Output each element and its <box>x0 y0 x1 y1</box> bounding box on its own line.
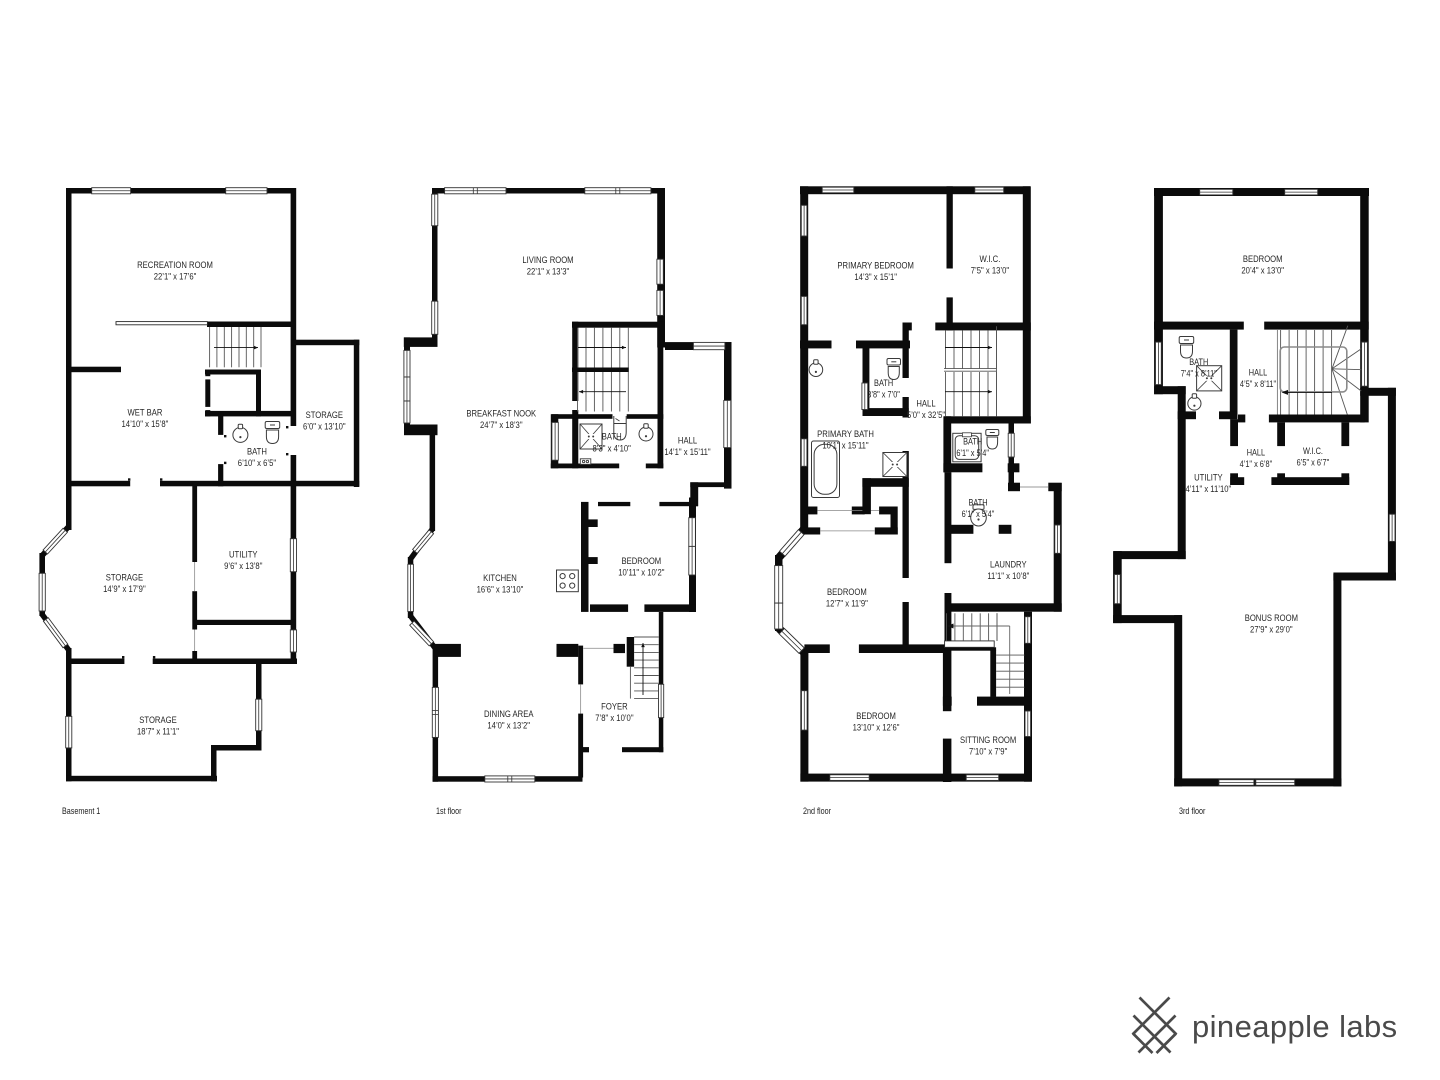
svg-text:4’1" x 6’8": 4’1" x 6’8" <box>1240 458 1273 469</box>
svg-text:STORAGE: STORAGE <box>106 572 144 583</box>
svg-text:14’3" x 15’1": 14’3" x 15’1" <box>854 271 897 282</box>
svg-text:KITCHEN: KITCHEN <box>483 572 517 583</box>
svg-text:14’10" x 15’8": 14’10" x 15’8" <box>122 418 169 429</box>
svg-text:BATH: BATH <box>602 431 622 442</box>
svg-text:4’5" x 8’11": 4’5" x 8’11" <box>1240 378 1276 389</box>
svg-text:2nd floor: 2nd floor <box>803 806 831 816</box>
svg-text:7’10" x 7’9": 7’10" x 7’9" <box>969 745 1007 756</box>
svg-text:LIVING ROOM: LIVING ROOM <box>522 254 573 265</box>
svg-text:7’8" x 10’0": 7’8" x 10’0" <box>595 712 633 723</box>
svg-text:BONUS ROOM: BONUS ROOM <box>1245 612 1298 623</box>
svg-text:BATH: BATH <box>1189 356 1208 367</box>
svg-text:5’0" x 32’5": 5’0" x 32’5" <box>907 409 945 420</box>
svg-text:SITTING ROOM: SITTING ROOM <box>960 734 1016 745</box>
svg-text:BATH: BATH <box>247 446 267 457</box>
svg-text:27’9" x 29’0": 27’9" x 29’0" <box>1250 623 1293 634</box>
svg-text:BATH: BATH <box>968 497 987 508</box>
svg-text:14’9" x 17’9": 14’9" x 17’9" <box>103 583 146 594</box>
svg-text:6’1" x 5’4": 6’1" x 5’4" <box>962 508 995 519</box>
svg-text:12’7" x 11’9": 12’7" x 11’9" <box>826 597 868 608</box>
svg-text:7’5" x 13’0": 7’5" x 13’0" <box>971 265 1009 276</box>
svg-text:10’11" x 10’2": 10’11" x 10’2" <box>618 567 664 578</box>
svg-text:W.I.C.: W.I.C. <box>979 253 1000 264</box>
svg-text:BEDROOM: BEDROOM <box>1243 253 1283 264</box>
svg-text:22’1" x 13’3": 22’1" x 13’3" <box>527 266 570 277</box>
svg-text:DINING AREA: DINING AREA <box>484 708 534 719</box>
svg-text:HALL: HALL <box>1247 447 1266 458</box>
svg-text:14’0" x 13’2": 14’0" x 13’2" <box>487 720 530 731</box>
svg-text:BREAKFAST NOOK: BREAKFAST NOOK <box>466 408 536 419</box>
svg-text:HALL: HALL <box>916 397 935 408</box>
svg-text:3rd floor: 3rd floor <box>1179 806 1206 816</box>
svg-text:pineapple labs: pineapple labs <box>1192 1009 1398 1044</box>
svg-text:24’7" x 18’3": 24’7" x 18’3" <box>480 419 523 430</box>
svg-text:6’0" x 13’10": 6’0" x 13’10" <box>303 421 346 432</box>
svg-text:6’10" x 6’5": 6’10" x 6’5" <box>238 457 276 468</box>
svg-text:RECREATION ROOM: RECREATION ROOM <box>137 259 213 270</box>
svg-text:22’1" x 17’6": 22’1" x 17’6" <box>154 271 197 282</box>
svg-text:UTILITY: UTILITY <box>229 549 258 560</box>
svg-text:1st floor: 1st floor <box>436 806 462 816</box>
svg-text:W.I.C.: W.I.C. <box>1303 445 1323 456</box>
svg-text:PRIMARY BEDROOM: PRIMARY BEDROOM <box>837 260 913 271</box>
svg-text:BEDROOM: BEDROOM <box>827 586 867 597</box>
svg-text:16’6" x 13’10": 16’6" x 13’10" <box>477 584 524 595</box>
svg-text:4’11" x 11’10": 4’11" x 11’10" <box>1186 483 1232 494</box>
svg-text:18’7" x 11’1": 18’7" x 11’1" <box>137 726 179 737</box>
svg-text:FOYER: FOYER <box>601 701 627 712</box>
svg-text:20’4" x 13’0": 20’4" x 13’0" <box>1241 265 1284 276</box>
svg-text:BEDROOM: BEDROOM <box>856 710 896 721</box>
svg-text:11’1" x 10’8": 11’1" x 10’8" <box>987 570 1029 581</box>
svg-text:UTILITY: UTILITY <box>1194 472 1223 483</box>
svg-text:LAUNDRY: LAUNDRY <box>990 559 1027 570</box>
svg-text:HALL: HALL <box>678 435 697 446</box>
svg-text:Basement 1: Basement 1 <box>62 806 101 816</box>
svg-text:13’10" x 12’6": 13’10" x 12’6" <box>853 721 900 732</box>
svg-text:WET BAR: WET BAR <box>128 407 163 418</box>
svg-text:9’6" x 13’8": 9’6" x 13’8" <box>224 560 262 571</box>
svg-text:6’5" x 6’7": 6’5" x 6’7" <box>1297 457 1330 468</box>
svg-text:PRIMARY BATH: PRIMARY BATH <box>817 428 874 439</box>
svg-text:3’8" x 7’0": 3’8" x 7’0" <box>867 388 900 399</box>
svg-text:HALL: HALL <box>1249 367 1268 378</box>
svg-text:14’1" x 15’11": 14’1" x 15’11" <box>664 446 710 457</box>
svg-text:BATH: BATH <box>963 436 982 447</box>
svg-text:BEDROOM: BEDROOM <box>622 555 662 566</box>
svg-text:STORAGE: STORAGE <box>306 409 344 420</box>
svg-text:BATH: BATH <box>874 377 893 388</box>
svg-text:7’4" x 8’11": 7’4" x 8’11" <box>1181 368 1217 379</box>
svg-text:10’1" x 15’11": 10’1" x 15’11" <box>822 440 868 451</box>
svg-text:STORAGE: STORAGE <box>139 714 177 725</box>
svg-text:6’1" x 5’4": 6’1" x 5’4" <box>956 447 989 458</box>
svg-text:8’3" x 4’10": 8’3" x 4’10" <box>593 442 631 453</box>
